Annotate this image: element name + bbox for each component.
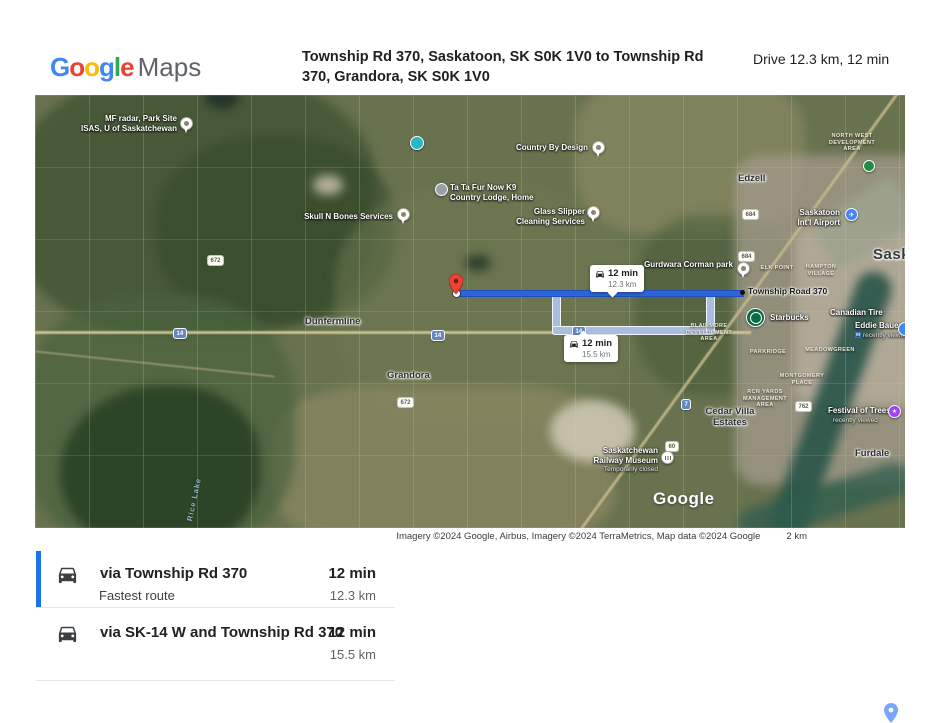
route-option-1-via[interactable]: via Township Rd 370 xyxy=(100,565,247,582)
logo-letter: e xyxy=(120,52,133,82)
area-label-elk-point: ELK POINT xyxy=(761,265,794,272)
highway-shield-684: 684 xyxy=(738,251,755,262)
callout-time: 12 min xyxy=(608,268,638,279)
poi-label-starbucks[interactable]: Starbucks xyxy=(770,313,809,323)
list-divider xyxy=(36,680,395,681)
starbucks-icon[interactable] xyxy=(746,308,765,327)
highway-shield-762: 762 xyxy=(795,401,812,412)
route-title: Township Rd 370, Saskatoon, SK S0K 1V0 t… xyxy=(302,48,717,87)
poi-label-skull-n-bones[interactable]: Skull N Bones Services xyxy=(275,212,393,222)
logo-letter: G xyxy=(50,52,69,82)
area-label-blairmore: BLAIRMOREDEVELOPMENTAREA xyxy=(686,323,732,343)
callout-distance: 12.3 km xyxy=(595,280,638,289)
poi-label-airport[interactable]: SaskatoonInt'l Airport xyxy=(780,208,840,227)
route-option-2-distance: 15.5 km xyxy=(300,647,376,662)
car-icon xyxy=(56,563,80,587)
map-pin-icon[interactable] xyxy=(397,208,410,221)
area-label-montgomery-place: MONTGOMERYPLACE xyxy=(780,373,824,386)
map-pin-icon[interactable] xyxy=(592,141,605,154)
place-label-furdale: Furdale xyxy=(855,448,889,459)
car-icon xyxy=(595,269,605,279)
highway-shield-7: 7 xyxy=(681,399,691,410)
area-label-meadowgreen: MEADOWGREEN xyxy=(805,347,855,354)
area-label-cedar-villa: Cedar VillaEstates xyxy=(706,406,755,428)
map-pin-icon[interactable] xyxy=(587,206,600,219)
poi-label-country-by-design[interactable]: Country By Design xyxy=(488,143,588,153)
museum-icon[interactable] xyxy=(661,451,674,464)
poi-label-ta-ta-fur[interactable]: Ta Ta Fur Now K9Country Lodge, Home xyxy=(450,183,534,202)
highway-shield-684: 684 xyxy=(742,209,759,220)
store-icon[interactable] xyxy=(898,322,905,336)
route-callout-alternate[interactable]: 12 min 15.5 km xyxy=(564,335,618,362)
route-option-1-distance: 12.3 km xyxy=(300,588,376,603)
area-label-north-west: NORTH WESTDEVELOPMENTAREA xyxy=(829,133,875,153)
map-pin-icon-bottom xyxy=(884,703,898,723)
place-label-saskatoon: Saskatoon xyxy=(873,246,905,263)
callout-time: 12 min xyxy=(582,338,612,349)
place-label-grandora: Grandora xyxy=(387,370,430,381)
highway-shield-672: 672 xyxy=(397,397,414,408)
map-pin-icon[interactable] xyxy=(180,117,193,130)
origin-pin-icon[interactable] xyxy=(449,274,463,294)
list-divider xyxy=(36,607,395,608)
map-canvas[interactable]: Township Road 370 12 min 12.3 km 12 min … xyxy=(35,95,905,528)
area-label-parkridge: PARKRIDGE xyxy=(750,349,786,356)
route-destination-dot xyxy=(740,290,745,295)
route-option-2-duration: 12 min xyxy=(300,624,376,641)
place-label-edzell: Edzell xyxy=(738,173,765,184)
map-attribution: Imagery ©2024 Google, Airbus, Imagery ©2… xyxy=(396,531,807,542)
poi-label-glass-slipper[interactable]: Glass SlipperCleaning Services xyxy=(495,207,585,226)
drive-summary: Drive 12.3 km, 12 min xyxy=(753,51,889,67)
park-icon[interactable] xyxy=(863,160,875,172)
poi-label-gurdwara[interactable]: Gurdwara Corman park xyxy=(633,260,733,270)
airport-icon[interactable]: ✈ xyxy=(845,208,858,221)
township-grid xyxy=(35,95,905,528)
map-pin-icon[interactable] xyxy=(737,262,750,275)
highway-shield-14: 14 xyxy=(431,330,445,341)
place-label-dunfermline: Dunfermline xyxy=(305,316,360,327)
selected-route-indicator xyxy=(36,551,41,608)
logo-maps-word: Maps xyxy=(138,52,202,82)
area-label-hampton-village: HAMPTONVILLAGE xyxy=(806,264,837,277)
car-icon xyxy=(56,622,80,646)
attraction-icon-purple[interactable]: ★ xyxy=(888,405,901,418)
poi-label-mf-radar[interactable]: MF radar, Park SiteISAS, U of Saskatchew… xyxy=(55,114,177,133)
poi-label-festival-of-trees[interactable]: Festival of Trees recently viewed xyxy=(828,406,891,425)
car-icon xyxy=(569,339,579,349)
logo-letter: o xyxy=(69,52,84,82)
closed-business-icon[interactable] xyxy=(435,183,448,196)
route-callout-primary[interactable]: 12 min 12.3 km xyxy=(590,265,644,292)
logo-letter: g xyxy=(99,52,114,82)
recently-viewed-icon: M xyxy=(855,332,861,338)
callout-distance: 15.5 km xyxy=(569,350,612,359)
poi-label-railway-museum[interactable]: Saskatchewan Railway Museum Temporarily … xyxy=(575,446,658,475)
logo-letter: o xyxy=(84,52,99,82)
scale-label: 2 km xyxy=(786,531,807,542)
destination-road-label[interactable]: Township Road 370 xyxy=(748,286,827,296)
google-maps-logo: GoogleMaps xyxy=(50,52,201,83)
route-option-1-duration: 12 min xyxy=(300,565,376,582)
google-watermark: Google xyxy=(653,489,715,509)
poi-label-canadian-tire[interactable]: Canadian Tire xyxy=(830,308,883,318)
highway-shield-14: 14 xyxy=(173,328,187,339)
highway-shield-672: 672 xyxy=(207,255,224,266)
route-option-1-note: Fastest route xyxy=(99,588,175,603)
attraction-icon[interactable] xyxy=(410,136,424,150)
